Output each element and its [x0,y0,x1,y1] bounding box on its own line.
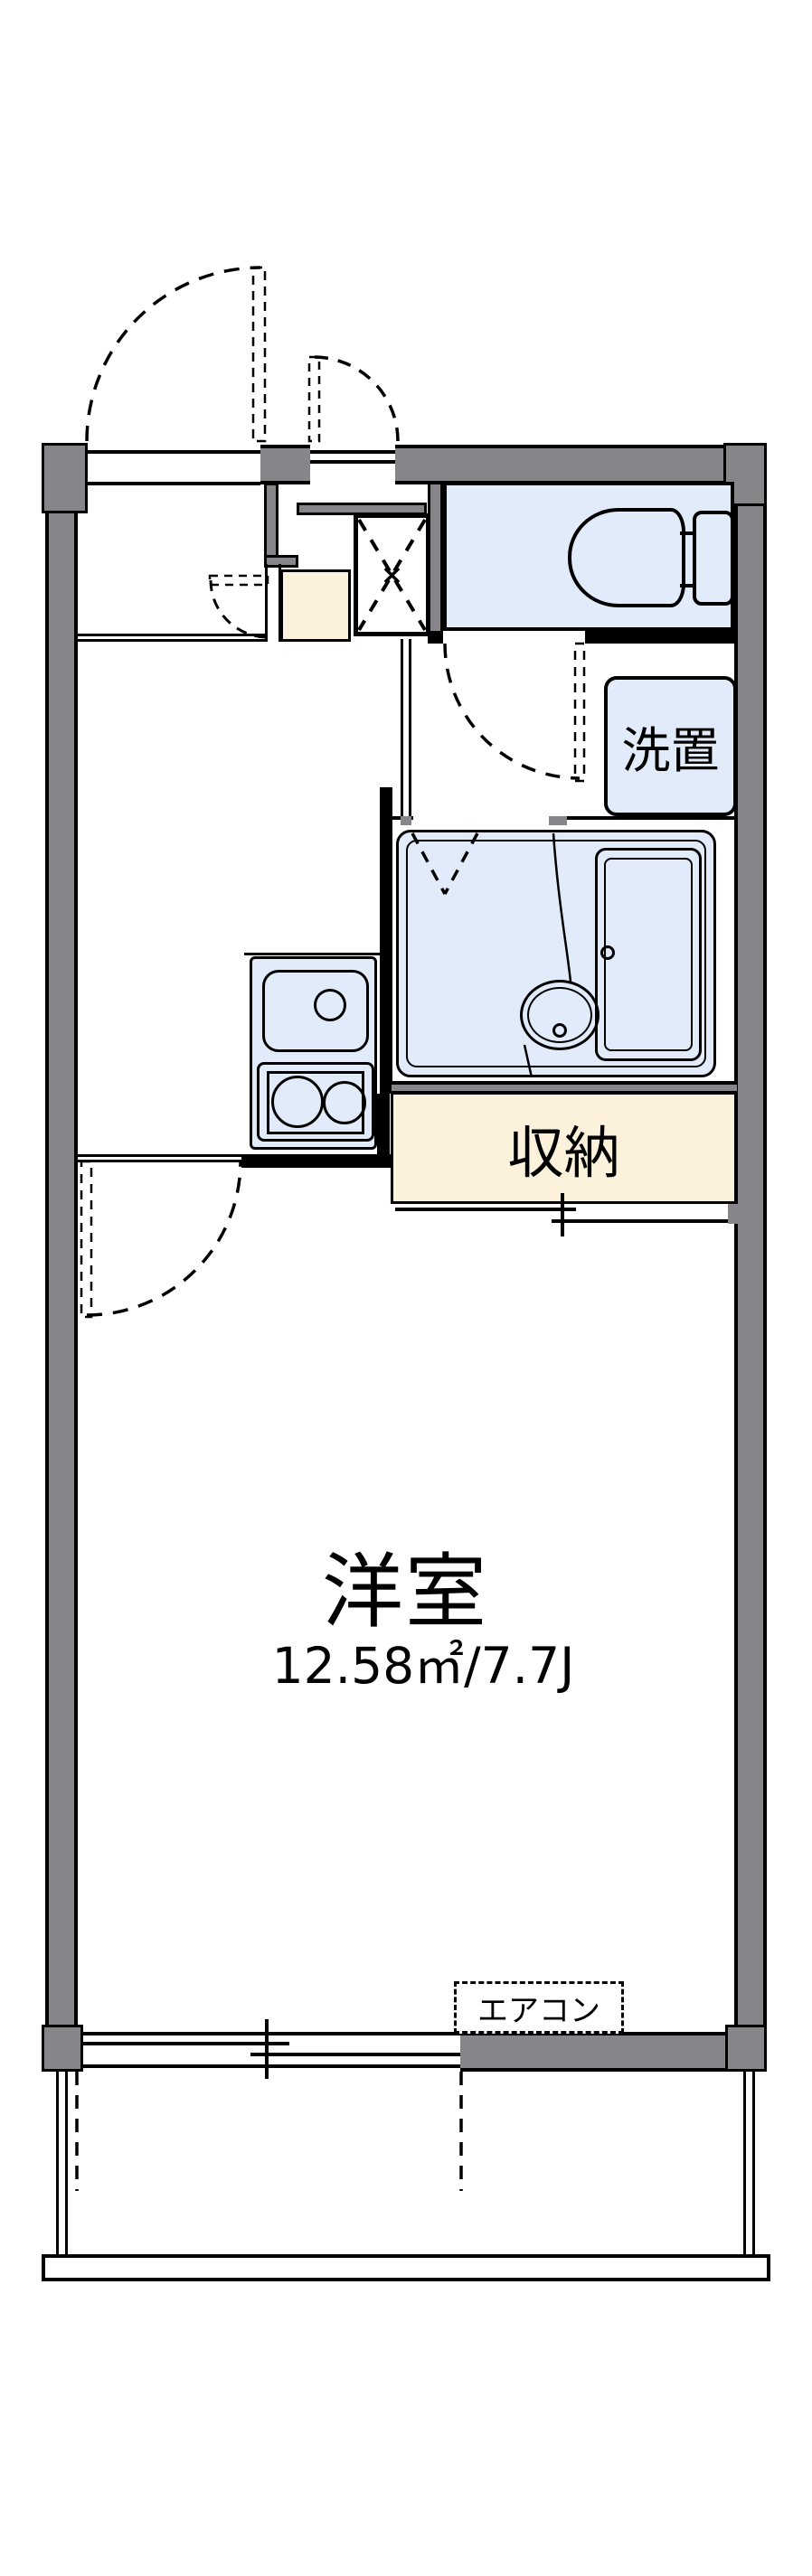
window-sash-line-right [250,2053,460,2056]
closet-box: 収納 [391,1092,737,1204]
dk-doorway-line-2 [75,1160,241,1162]
main-room-size-text: 12.58㎡/7.7J [272,1625,575,1697]
genkan-frame-line-left [265,564,268,642]
washroom-wall-line-1 [401,639,403,816]
stove-burner-right [323,1081,366,1124]
window-top-line [83,2032,460,2035]
wall-right [734,445,767,2072]
closet-slide-door-line-2 [552,1219,737,1223]
closet-slide-door-tick [561,1193,564,1236]
balcony-side-left-line-2 [65,2072,68,2256]
main-room-name: 洋室 [251,1539,559,1630]
entrance-door-opening-top-line [88,450,260,454]
entrance-door-swing-arc [87,268,260,441]
meterbox-door-opening [310,439,395,503]
washroom-wall-line-2 [409,639,411,816]
entrance-door-opening-bottom-line [88,482,260,485]
bathtub-inner-line [604,858,693,1051]
closet-slide-door-line-1 [395,1208,576,1211]
hall-divider-stub [264,555,298,568]
meterbox-opening-mid-line [310,460,395,464]
bath-left-wall [380,787,392,1094]
closet-label: 収納 [507,1107,619,1189]
washer-space-label: 洗置 [622,710,720,782]
meterbox-door-swing-arc [314,357,398,441]
meterbox-opening-top-line [310,450,395,454]
pillar-bottom-left [42,2025,83,2072]
washer-space-box: 洗置 [604,676,737,816]
hall-dk-line-2 [75,639,266,642]
toilet-connector-top [680,531,694,535]
bath-door-jamb-left [401,816,411,825]
pillar-top-left [42,443,88,513]
window-bottom-line [83,2064,460,2068]
dk-room-wall [241,1154,391,1168]
window-center-tick [265,2019,269,2079]
toilet-left-wall [428,482,443,644]
bathtub-drain-knob [600,945,615,960]
balcony-side-right-line-1 [743,2072,746,2256]
entrance-door-leaf [253,268,265,441]
toilet-connector-bottom [680,584,694,588]
stove-burner-left [271,1076,324,1128]
bath-sink-drain [552,1023,567,1038]
genkan-door-leaf [210,576,268,585]
hall-divider-wall [264,483,279,564]
balcony-railing [42,2254,770,2281]
dk-doorway-line-1 [75,1154,241,1157]
kitchen-sink-drain [314,989,346,1021]
meterbox-door-leaf [309,357,319,441]
main-room-door-leaf [81,1161,91,1317]
balcony-side-left-line-1 [56,2072,59,2256]
genkan-door-swing-arc [211,580,268,637]
toilet-bottom-wall-right [585,631,737,644]
floor-plan: × 洗置 収納 洋室 [0,0,812,2576]
pillar-bottom-right [725,2025,767,2072]
meter-box-x-mark: × [381,559,403,591]
toilet-bowl [568,508,685,607]
window-sash-line-left [83,2042,289,2045]
aircon-box: エアコン [454,1981,624,2034]
genkan-tile-floor [280,569,351,642]
bath-door-jamb-right [549,816,567,825]
wall-left [45,445,78,2072]
toilet-bottom-wall-left [428,631,443,644]
main-room-door-swing-arc [87,1161,241,1315]
toilet-door-swing-arc [445,644,580,778]
dashed-symbols-overlay [0,0,812,2576]
kitchen-counter-line [244,953,380,955]
balcony-side-right-line-2 [752,2072,755,2256]
toilet-door-leaf [575,644,584,781]
bath-top-line-right [549,816,737,820]
entrance-door-opening [88,439,260,488]
main-room-size: 12.58㎡/7.7J [215,1632,631,1690]
aircon-label: エアコン [477,1986,600,2030]
closet-side-pillar [728,1204,739,1224]
hall-dk-line-1 [75,634,266,636]
meter-box: × [354,513,430,636]
toilet-tank [693,511,734,606]
